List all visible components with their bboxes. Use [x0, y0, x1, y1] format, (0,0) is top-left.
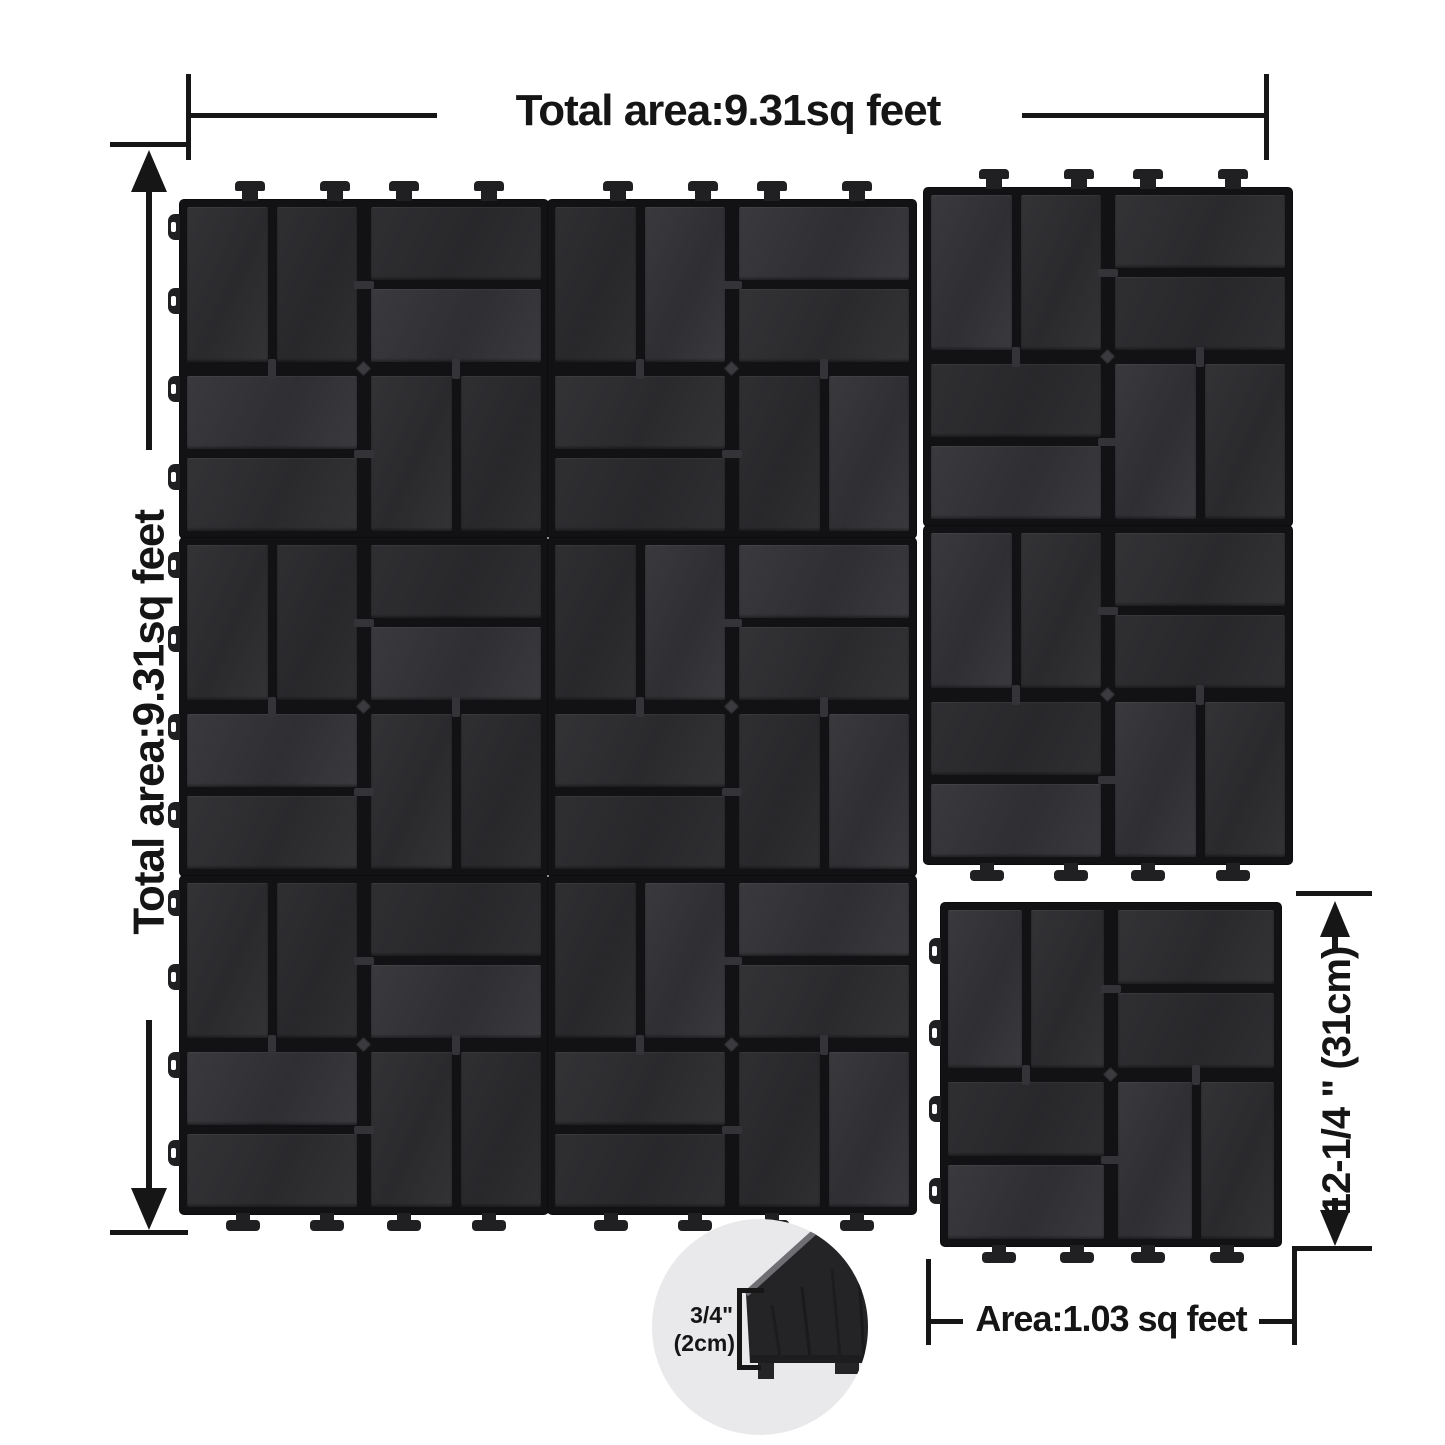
interlock-tab-left	[168, 552, 180, 578]
tile-slat	[1021, 533, 1102, 688]
tile-gap-clip	[820, 697, 828, 717]
interlock-foot	[1220, 1245, 1234, 1253]
interlock-tab-left	[929, 1178, 941, 1204]
tile-slat	[931, 195, 1012, 350]
interlock-foot	[1141, 1245, 1155, 1253]
interlock-foot	[1141, 863, 1155, 871]
tile-center-clip	[724, 361, 740, 377]
deck-tile-dimension-diagram: Total area:9.31sq feet Total area:9.31sq…	[0, 0, 1445, 1445]
interlock-tab-left	[929, 1096, 941, 1122]
tile-slat	[1115, 702, 1196, 857]
tile-gap-clip	[354, 450, 374, 458]
interlock-tab-left	[168, 464, 180, 490]
tile-gap-clip	[268, 1035, 276, 1055]
tile-slat	[555, 796, 725, 869]
interlock-tab-left	[168, 1052, 180, 1078]
tile-slat	[739, 627, 909, 700]
tile-slat	[1205, 364, 1286, 519]
interlock-tab-top	[610, 190, 626, 201]
tile-gap-clip	[452, 697, 460, 717]
tile-gap-clip	[354, 619, 374, 627]
tile-gap-clip	[1098, 607, 1118, 615]
top-dim-left-line	[189, 113, 437, 118]
tile-slat	[277, 207, 358, 362]
tile-gap-clip	[1098, 776, 1118, 784]
tile-slat	[371, 627, 541, 700]
interlock-tab-left	[168, 626, 180, 652]
tile-slat	[371, 376, 452, 531]
tile-gap-clip	[452, 359, 460, 379]
deck-tile	[548, 876, 916, 1214]
tile-gap-clip	[722, 619, 742, 627]
tile-gap-clip	[268, 697, 276, 717]
tile-gap-clip	[1098, 269, 1118, 277]
tile-slat	[1201, 1082, 1275, 1240]
left-dim-lower-shaft	[146, 1020, 152, 1188]
thickness-bracket-top-tick	[737, 1288, 764, 1293]
tile-center-clip	[356, 361, 372, 377]
tile-slat	[948, 910, 1022, 1068]
tile-slat	[277, 545, 358, 700]
tile-slat	[555, 1052, 725, 1125]
interlock-tab-top	[849, 190, 865, 201]
tile-gap-clip	[354, 281, 374, 289]
tile-gap-clip	[1101, 985, 1121, 993]
tile-slat	[555, 883, 636, 1038]
tile-height-down-arrow	[1320, 1210, 1350, 1246]
tile-slat	[555, 714, 725, 787]
tile-center-clip	[724, 1037, 740, 1053]
tile-slat	[1115, 364, 1196, 519]
tile-slat	[948, 1165, 1104, 1239]
interlock-foot	[604, 1213, 618, 1221]
tile-gap-clip	[722, 450, 742, 458]
tile-slat	[1115, 533, 1285, 606]
tile-slat	[555, 458, 725, 531]
tile-slat	[739, 714, 820, 869]
thickness-bracket-bottom-tick	[737, 1365, 761, 1370]
interlock-tab-left	[168, 214, 180, 240]
single-deck-tile	[941, 903, 1281, 1246]
tile-slat	[739, 376, 820, 531]
left-dim-down-arrow	[131, 1188, 167, 1230]
tile-slat	[461, 376, 542, 531]
tile-gap-clip	[452, 1035, 460, 1055]
tile-slat	[187, 1052, 357, 1125]
interlock-tab-left	[168, 714, 180, 740]
tile-gap-clip	[1192, 1065, 1200, 1085]
tile-slat	[1205, 702, 1286, 857]
tile-slat	[187, 376, 357, 449]
tile-slat	[187, 714, 357, 787]
deck-tile	[924, 188, 1292, 526]
interlock-tab-top	[986, 178, 1002, 189]
tile-gap-clip	[268, 359, 276, 379]
deck-tile	[180, 200, 548, 538]
tile-slat	[829, 714, 910, 869]
interlock-foot	[320, 1213, 334, 1221]
deck-tile	[548, 200, 916, 538]
thickness-bracket	[737, 1288, 742, 1370]
tile-center-clip	[1100, 687, 1116, 703]
tile-slat	[829, 376, 910, 531]
tile-height-bottom-bar	[1292, 1246, 1372, 1251]
interlock-tab-top	[764, 190, 780, 201]
deck-tile	[180, 876, 548, 1214]
interlock-tab-left	[929, 938, 941, 964]
tile-slat	[461, 1052, 542, 1207]
tile-gap-clip	[1022, 1065, 1030, 1085]
thickness-label-inches: 3/4"	[615, 1302, 733, 1328]
tile-gap-clip	[820, 1035, 828, 1055]
tile-slat	[555, 207, 636, 362]
top-dimension-label: Total area:9.31sq feet	[450, 86, 1006, 137]
tile-slat	[1031, 910, 1105, 1068]
thickness-label-cm: (2cm)	[605, 1330, 735, 1356]
interlock-foot	[482, 1213, 496, 1221]
tile-gap-clip	[722, 788, 742, 796]
interlock-tab-top	[396, 190, 412, 201]
tile-area-right-stub	[1259, 1319, 1292, 1324]
tile-slat	[371, 965, 541, 1038]
slab-foot	[835, 1363, 859, 1374]
interlock-tab-left	[168, 964, 180, 990]
tile-slat	[371, 207, 541, 280]
tile-slat	[931, 784, 1101, 857]
tile-slat	[187, 545, 268, 700]
tile-gap-clip	[1012, 347, 1020, 367]
deck-tile	[924, 526, 1292, 864]
top-dim-right-line	[1022, 113, 1264, 118]
interlock-foot	[1064, 863, 1078, 871]
interlock-tab-top	[242, 190, 258, 201]
tile-slat	[739, 207, 909, 280]
interlock-tab-top	[1225, 178, 1241, 189]
interlock-tab-left	[168, 376, 180, 402]
tile-slat	[645, 545, 726, 700]
tile-gap-clip	[636, 1035, 644, 1055]
interlock-foot	[992, 1245, 1006, 1253]
tile-slat	[555, 545, 636, 700]
interlock-foot	[397, 1213, 411, 1221]
tile-gap-clip	[722, 957, 742, 965]
tile-gap-clip	[1101, 1156, 1121, 1164]
tile-slat	[1115, 195, 1285, 268]
tile-gap-clip	[820, 359, 828, 379]
tile-gap-clip	[354, 1126, 374, 1134]
tile-gap-clip	[1196, 685, 1204, 705]
interlock-tab-top	[695, 190, 711, 201]
tile-slat	[187, 796, 357, 869]
interlock-tab-top	[327, 190, 343, 201]
tile-gap-clip	[722, 281, 742, 289]
tile-height-top-bar	[1296, 891, 1372, 896]
interlock-tab-top	[1140, 178, 1156, 189]
tile-height-label: 12-1/4 " (31cm)	[1314, 916, 1360, 1246]
interlock-tab-left	[929, 1020, 941, 1046]
tile-slat	[371, 545, 541, 618]
tile-slat	[277, 883, 358, 1038]
interlock-tab-left	[168, 890, 180, 916]
tile-center-clip	[356, 1037, 372, 1053]
tile-slat	[1115, 615, 1285, 688]
tile-slat	[948, 1082, 1104, 1156]
tile-gap-clip	[636, 697, 644, 717]
tile-center-clip	[724, 699, 740, 715]
interlock-tab-left	[168, 1140, 180, 1166]
tile-gap-clip	[722, 1126, 742, 1134]
tile-slat	[371, 714, 452, 869]
tile-slat	[1115, 277, 1285, 350]
interlock-tab-left	[168, 802, 180, 828]
tile-slat	[371, 1052, 452, 1207]
left-dim-upper-shaft	[146, 190, 152, 450]
tile-area-right-bracket	[1292, 1250, 1297, 1345]
tile-slat	[739, 289, 909, 362]
tile-slat	[739, 883, 909, 956]
tile-slat	[931, 364, 1101, 437]
tile-slat	[1118, 1082, 1192, 1240]
tile-gap-clip	[1196, 347, 1204, 367]
interlock-tab-left	[168, 288, 180, 314]
tile-slat	[371, 883, 541, 956]
tile-slat	[187, 207, 268, 362]
tile-slat	[931, 702, 1101, 775]
deck-tile	[180, 538, 548, 876]
tile-slat	[931, 533, 1012, 688]
tile-slat	[645, 207, 726, 362]
tile-slat	[555, 376, 725, 449]
tile-gap-clip	[354, 957, 374, 965]
tile-area-left-stub	[931, 1319, 963, 1324]
tile-slat	[187, 883, 268, 1038]
tile-slat	[1118, 910, 1274, 984]
tile-center-clip	[1100, 349, 1116, 365]
tile-slat	[739, 545, 909, 618]
tile-gap-clip	[636, 359, 644, 379]
tile-gap-clip	[1098, 438, 1118, 446]
tile-slat	[461, 714, 542, 869]
tile-gap-clip	[1012, 685, 1020, 705]
tile-slat	[931, 446, 1101, 519]
interlock-foot	[1070, 1245, 1084, 1253]
tile-slat	[645, 883, 726, 1038]
interlock-foot	[1226, 863, 1240, 871]
left-dim-top-tick	[110, 142, 188, 147]
tile-area-left-bracket	[926, 1259, 931, 1345]
interlock-tab-top	[481, 190, 497, 201]
deck-tile	[548, 538, 916, 876]
interlock-foot	[236, 1213, 250, 1221]
tile-slat	[739, 965, 909, 1038]
tile-slat	[1021, 195, 1102, 350]
tile-gap-clip	[354, 788, 374, 796]
left-dim-bottom-tick	[110, 1230, 188, 1235]
tile-slat	[187, 458, 357, 531]
interlock-tab-top	[1071, 178, 1087, 189]
left-dim-up-arrow	[131, 150, 167, 192]
tile-slat	[371, 289, 541, 362]
tile-slat	[187, 1134, 357, 1207]
tile-center-clip	[1103, 1066, 1119, 1082]
interlock-foot	[980, 863, 994, 871]
tile-slat	[1118, 993, 1274, 1067]
tile-slat	[739, 1052, 820, 1207]
top-dim-right-tick	[1264, 74, 1269, 160]
tile-area-label: Area:1.03 sq feet	[963, 1298, 1259, 1339]
tile-slat	[829, 1052, 910, 1207]
tile-slat	[555, 1134, 725, 1207]
tile-center-clip	[356, 699, 372, 715]
